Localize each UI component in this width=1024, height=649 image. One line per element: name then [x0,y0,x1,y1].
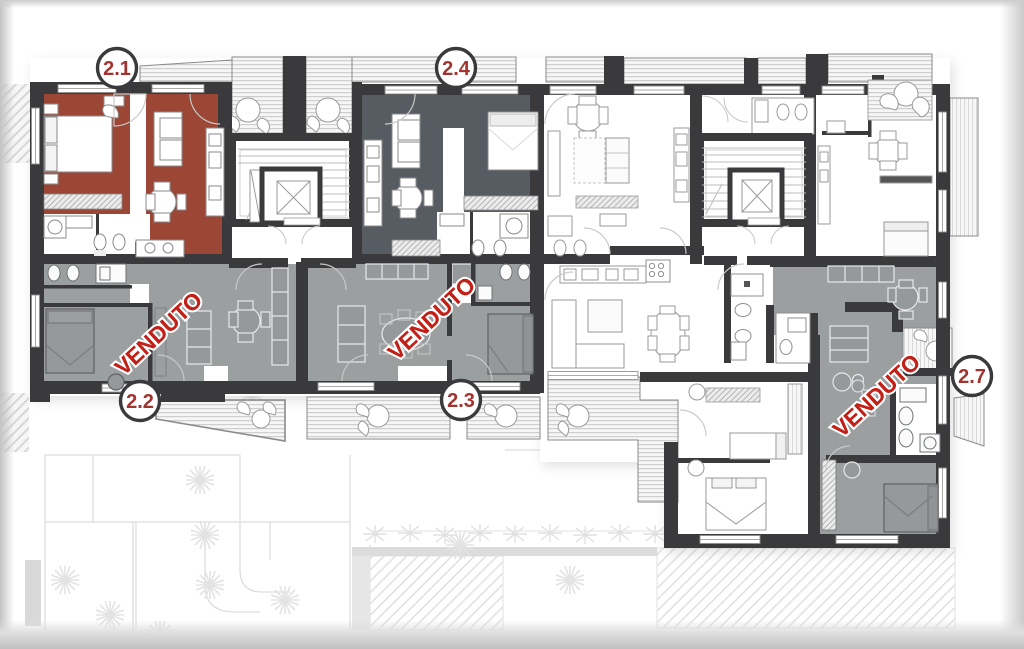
svg-text:2.2: 2.2 [126,391,154,413]
svg-text:2.7: 2.7 [958,366,986,388]
svg-text:2.4: 2.4 [442,58,471,80]
svg-text:2.3: 2.3 [447,390,475,412]
svg-text:2.1: 2.1 [103,58,131,80]
